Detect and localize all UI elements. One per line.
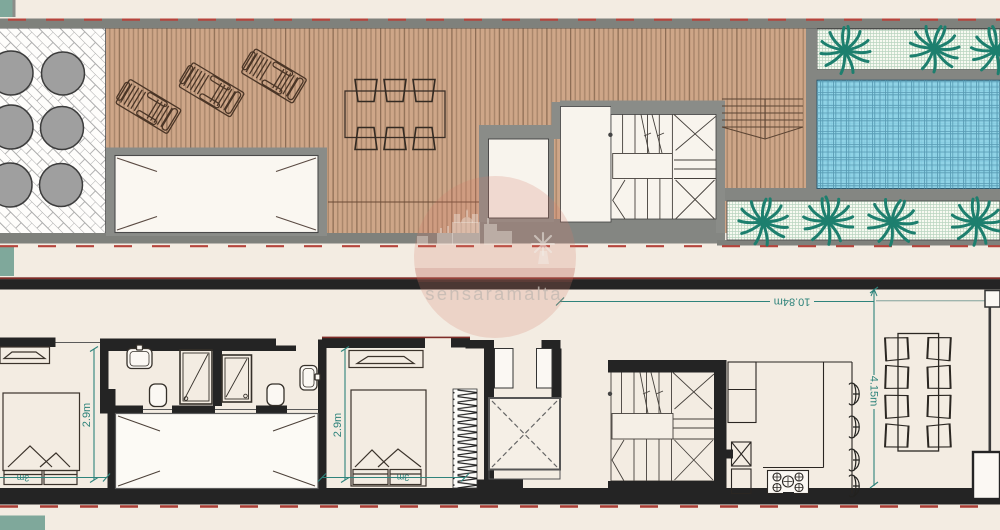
svg-text:sensaramalta: sensaramalta: [425, 283, 562, 304]
svg-text:2.9m: 2.9m: [81, 403, 93, 427]
svg-text:10.84m: 10.84m: [774, 296, 811, 308]
svg-text:3m: 3m: [397, 473, 410, 483]
svg-text:3m: 3m: [17, 473, 30, 483]
svg-text:2.9m: 2.9m: [332, 413, 344, 437]
svg-text:4.15m: 4.15m: [868, 376, 880, 407]
